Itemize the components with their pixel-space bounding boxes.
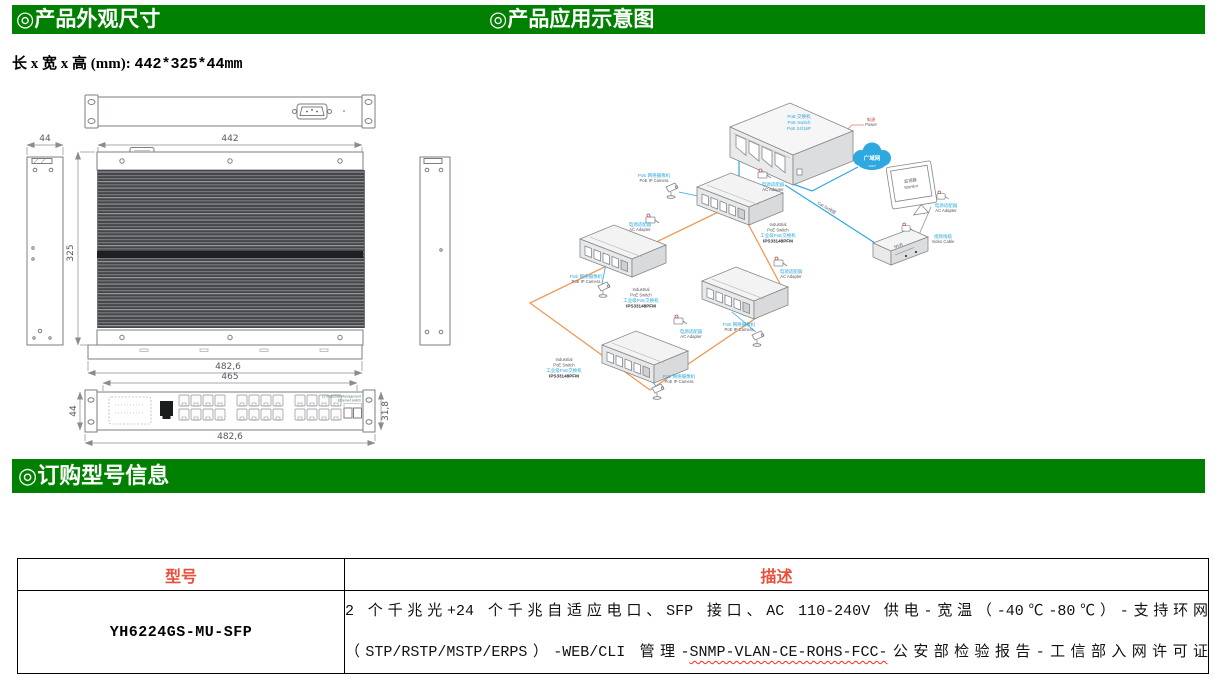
wan-cloud-icon: 广域网 WAN xyxy=(853,143,891,171)
adapter-b-label: 电源适配器AC Adapter xyxy=(629,221,652,232)
dimensions-value: 442*325*44mm xyxy=(134,56,242,73)
dim-465: 465 xyxy=(103,372,357,391)
description-line-2-post: 公安部检验报告-工信部入网许可证 xyxy=(888,644,1208,661)
dim-44-side: 44 xyxy=(27,134,63,155)
camera-b xyxy=(598,282,610,297)
camera-d-label: PoE 网络摄像机PoE IP Camera xyxy=(723,321,756,332)
application-diagram: PoE 交换机PoE SwitchPoE 24/16P 电源Power 广域网 … xyxy=(490,85,970,455)
dimensions-line: 长 x 宽 x 高 (mm): 442*325*44mm xyxy=(12,52,243,73)
description-line-2-spellcheck: SNMP-VLAN-CE-ROHS-FCC- xyxy=(689,644,887,661)
wan-cloud-sub-label: WAN xyxy=(868,164,876,168)
table-row: YH6224GS-MU-SFP 2 个千兆光+24 个千兆自适应电口、SFP 接… xyxy=(18,591,1209,674)
dim-442: 442 xyxy=(98,134,362,152)
camera-b-label: PoE 网络摄像机PoE IP Camera xyxy=(570,273,603,284)
camera-c xyxy=(652,384,664,399)
model-description: 2 个千兆光+24 个千兆自适应电口、SFP 接口、AC 110-240V 供电… xyxy=(345,591,1209,674)
section-title-appearance: ◎产品外观尺寸 xyxy=(16,5,160,34)
camera-a-label: PoE 网络摄像机PoE IP Camera xyxy=(638,172,671,183)
dim-325-label: 325 xyxy=(66,244,76,261)
front-panel-text-2: Ethernet switch xyxy=(338,399,361,403)
cat5e-cable-label: Cat.5e线缆 xyxy=(816,199,838,216)
drawing-left-side-view xyxy=(27,157,63,345)
description-line-2-pre: （STP/RSTP/MSTP/ERPS）-WEB/CLI 管理- xyxy=(345,644,689,661)
dim-4826-label: 482,6 xyxy=(215,362,241,372)
datasheet-page: ◎产品外观尺寸 ◎产品应用示意图 长 x 宽 x 高 (mm): 442*325… xyxy=(0,0,1226,686)
adapter-a-label: 电源适配器AC Adapter xyxy=(762,181,785,192)
camera-c-label: PoE 网络摄像机PoE IP Camera xyxy=(663,373,696,384)
camera-a xyxy=(666,183,678,198)
svg-text:PoE 交换机PoE SwitchPoE 24/16P: PoE 交换机PoE SwitchPoE 24/16P xyxy=(787,113,811,131)
section-title-application: ◎产品应用示意图 xyxy=(489,5,654,34)
section-header-ordering: ◎订购型号信息 xyxy=(12,459,1205,493)
column-header-model: 型号 xyxy=(18,559,345,591)
wan-cloud-label: 广域网 xyxy=(864,154,881,162)
column-header-description: 描述 xyxy=(345,559,1209,591)
table-header-row: 型号 描述 xyxy=(18,559,1209,591)
heatsink-fins-texture xyxy=(97,170,365,328)
nvr-icon: NVR xyxy=(873,229,928,265)
monitor-adapter-label: 电源适配器AC Adapter xyxy=(935,202,958,213)
industrial-switch-a xyxy=(697,173,783,225)
switch-c-info-label: IndustrialPoE Switch工业级PoE交换机IPS33148PFM xyxy=(546,357,582,379)
description-line-2: （STP/RSTP/MSTP/ERPS）-WEB/CLI 管理-SNMP-VLA… xyxy=(345,632,1208,673)
dim-4826-front: 482,6 xyxy=(85,432,375,443)
drawing-right-side-view xyxy=(420,157,450,345)
section-title-ordering: ◎订购型号信息 xyxy=(18,459,169,493)
dim-44-label: 44 xyxy=(39,134,51,144)
dim-325: 325 xyxy=(66,152,95,345)
adapter-d-label: 电源适配器AC Adapter xyxy=(780,268,803,279)
heatsink-dark-band xyxy=(97,251,363,258)
switch-a-info-label: IndustrialPoE Switch工业级PoE交换机IPS33148PFM xyxy=(760,222,796,244)
dim-4826-front-label: 482,6 xyxy=(217,432,243,442)
core-poe-switch: PoE 交换机PoE SwitchPoE 24/16P xyxy=(730,103,853,185)
drawing-rear-view xyxy=(85,95,375,128)
link-core-to-nvr xyxy=(785,185,875,243)
description-line-1: 2 个千兆光+24 个千兆自适应电口、SFP 接口、AC 110-240V 供电… xyxy=(345,591,1208,632)
drawing-front-view: L2 Industrial Management Ethernet switch xyxy=(85,390,375,432)
power-label: 电源Power xyxy=(865,116,877,127)
dim-318-label: 31,8 xyxy=(381,401,391,421)
model-number: YH6224GS-MU-SFP xyxy=(18,591,345,674)
camera-d xyxy=(752,331,764,346)
dim-318: 31,8 xyxy=(381,392,391,430)
dim-465-label: 465 xyxy=(221,372,238,382)
dim-442-label: 442 xyxy=(221,134,238,144)
industrial-switch-b xyxy=(580,225,666,277)
section-header-top: ◎产品外观尺寸 ◎产品应用示意图 xyxy=(12,5,1205,34)
monitor-icon: 监视器Monitor xyxy=(886,161,938,218)
video-cable-label: 视频线缆Video Cable xyxy=(932,233,955,244)
dim-44-front: 44 xyxy=(69,392,80,430)
adapter-d xyxy=(774,257,787,266)
adapter-c-label: 电源适配器AC Adapter xyxy=(680,328,703,339)
dim-44-front-label: 44 xyxy=(69,405,79,417)
adapter-c xyxy=(674,315,687,324)
order-model-table: 型号 描述 YH6224GS-MU-SFP 2 个千兆光+24 个千兆自适应电口… xyxy=(17,558,1209,674)
switch-b-info-label: IndustrialPoE Switch工业级PoE交换机IPS33148PFM xyxy=(623,287,659,309)
dimensions-label: 长 x 宽 x 高 (mm): xyxy=(12,56,134,72)
